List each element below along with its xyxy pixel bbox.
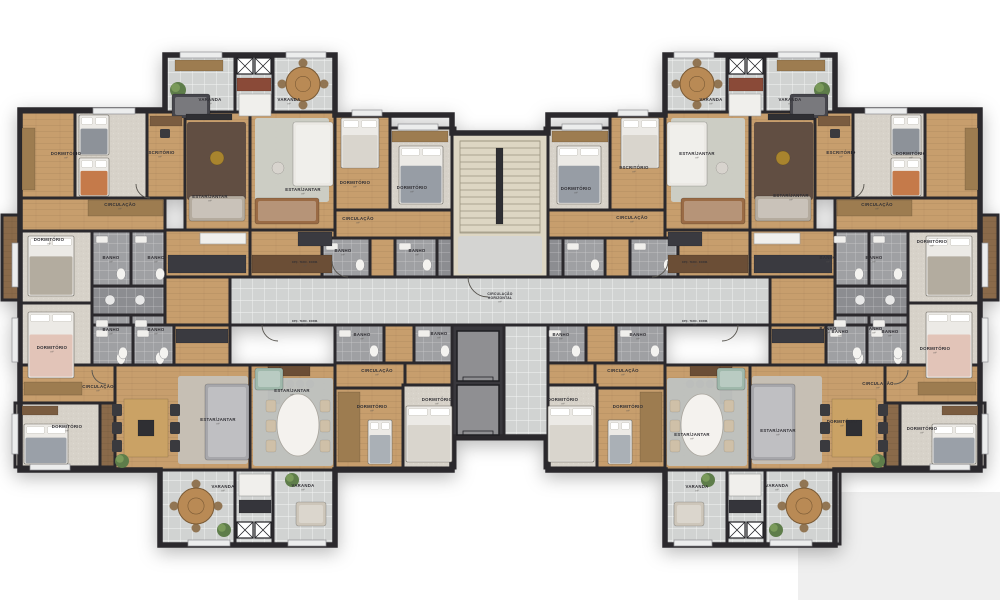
plant-leaf xyxy=(872,455,880,463)
room-overlay-circ-bm xyxy=(595,363,665,388)
round-table-chair xyxy=(299,59,308,68)
toilet-fixture xyxy=(894,347,903,359)
round-table-chair xyxy=(170,502,179,511)
room-area-label: m² xyxy=(415,253,418,256)
room-area-label: m² xyxy=(341,253,344,256)
stool xyxy=(105,295,115,305)
furniture-block xyxy=(942,406,978,415)
toilet-fixture xyxy=(855,268,864,280)
room-area-label: m² xyxy=(695,489,698,492)
elevator-cab xyxy=(457,331,499,381)
room-label: CIRCULAÇÃO xyxy=(607,368,639,373)
counter-block xyxy=(200,233,246,244)
room-label: BANHO xyxy=(147,327,164,332)
room-overlay-hall-tm xyxy=(370,238,395,277)
room-overlay-kitchen-tl2 xyxy=(165,277,230,325)
room-label: BANHO xyxy=(147,255,164,260)
bed-pillow xyxy=(362,121,377,128)
room-overlay-bath-hall xyxy=(92,286,170,315)
round-table-chair xyxy=(800,524,809,533)
sink-fixture xyxy=(339,330,351,337)
bed-blanket xyxy=(30,334,73,376)
room-area-label: m² xyxy=(875,207,878,210)
sofa-cushions xyxy=(258,371,280,387)
sofa-cushions xyxy=(258,201,316,221)
stool xyxy=(210,151,224,165)
room-area-label: m² xyxy=(109,260,112,263)
toilet-fixture xyxy=(651,345,660,357)
room-area-label: m² xyxy=(826,331,829,334)
window-mark xyxy=(982,414,988,454)
room-area-label: m² xyxy=(154,260,157,263)
door-arc xyxy=(262,325,278,341)
toilet-fixture xyxy=(160,347,169,359)
room-label: DORMITÓRIO xyxy=(37,345,68,350)
window-mark xyxy=(778,52,820,58)
round-table xyxy=(680,67,714,101)
chair xyxy=(320,440,330,452)
bed-blanket xyxy=(623,135,658,167)
sofa-cushions xyxy=(758,199,808,218)
furniture-block xyxy=(768,114,814,120)
room-label: ESTAR/JANTAR xyxy=(674,432,710,437)
furniture-block xyxy=(22,406,58,415)
window-mark xyxy=(12,318,18,362)
furniture-block xyxy=(496,148,503,224)
room-area-label: m² xyxy=(621,373,624,376)
window-mark xyxy=(12,243,18,287)
room-label: VARANDA xyxy=(700,97,723,102)
chair xyxy=(724,400,734,412)
room-label: DORMITÓRIO xyxy=(52,424,83,429)
bed-pillow xyxy=(560,149,578,156)
bed-pillow xyxy=(622,423,630,430)
sink-fixture xyxy=(634,243,646,250)
window-mark xyxy=(982,318,988,362)
room-area-label: m² xyxy=(154,332,157,335)
room-overlay-bath-hall xyxy=(830,286,908,315)
bed-blanket xyxy=(893,171,920,195)
room-label: BANHO xyxy=(552,332,569,337)
furniture-block xyxy=(818,116,850,126)
bed-pillow xyxy=(581,149,599,156)
furniture-block xyxy=(918,382,976,395)
chair xyxy=(170,422,180,434)
round-table-chair xyxy=(672,80,681,89)
room-label: CIRCULAÇÃO xyxy=(104,202,136,207)
room-label: CIRCULAÇÃO xyxy=(616,215,648,220)
bed-pillow xyxy=(894,118,905,125)
room-label: DORMITÓRIO xyxy=(613,404,644,409)
door-arc xyxy=(722,325,738,341)
window-mark xyxy=(93,108,135,114)
bed-blanket xyxy=(81,171,108,195)
window-mark xyxy=(12,414,18,454)
furniture-block xyxy=(252,255,332,273)
bed-pillow xyxy=(894,161,905,168)
room-label: BANHO xyxy=(629,332,646,337)
furniture-block xyxy=(22,128,35,190)
stool xyxy=(776,151,790,165)
room-label: ESCRITÓRIO xyxy=(619,165,649,170)
bed-pillow xyxy=(611,423,619,430)
chair xyxy=(670,420,680,432)
plant-leaf xyxy=(171,83,180,92)
room-area-label: m² xyxy=(208,102,211,105)
toilet-fixture xyxy=(370,345,379,357)
bed-pillow xyxy=(642,121,657,128)
room-label: BANHO xyxy=(865,326,882,331)
oval-table xyxy=(277,394,319,456)
room-label: CIRCULAÇÃO xyxy=(361,368,393,373)
bed-pillow xyxy=(929,315,948,322)
furniture-block xyxy=(150,116,182,126)
room-label: DORMITÓRIO xyxy=(920,346,951,351)
bed-pillow xyxy=(409,409,428,416)
round-table-chair xyxy=(320,80,329,89)
room-area-label: m² xyxy=(909,156,912,159)
room-label: CIRCULAÇÃO xyxy=(342,216,374,221)
room-area-label: m² xyxy=(158,155,161,158)
room-label: DORMITÓRIO xyxy=(548,397,579,402)
room-label: ESTAR/JANTAR xyxy=(679,151,715,156)
toilet-fixture xyxy=(591,259,600,271)
room-label: DORMITÓRIO xyxy=(397,185,428,190)
window-mark xyxy=(286,52,326,58)
furniture-block xyxy=(24,382,82,395)
round-table-chair xyxy=(278,80,287,89)
window-mark xyxy=(188,540,230,546)
room-label: DORMITÓRIO xyxy=(561,186,592,191)
rug xyxy=(458,236,542,274)
bed-blanket xyxy=(81,129,108,155)
round-table-chair xyxy=(800,480,809,489)
round-table xyxy=(178,488,214,524)
room-overlay-core-lobby xyxy=(504,325,548,439)
counter-block xyxy=(754,233,800,244)
bed-pillow xyxy=(431,409,450,416)
round-table-chair xyxy=(192,524,201,533)
room-area-label: m² xyxy=(356,221,359,224)
plant-leaf xyxy=(815,83,824,92)
room-label: BANHO xyxy=(102,255,119,260)
room-label: BANHO xyxy=(819,255,836,260)
stool xyxy=(855,295,865,305)
counter-block xyxy=(729,94,761,116)
bed-blanket xyxy=(343,135,378,167)
chair xyxy=(830,129,840,138)
room-area-label: m² xyxy=(709,102,712,105)
chair xyxy=(320,400,330,412)
sink-fixture xyxy=(834,236,846,243)
chair xyxy=(670,400,680,412)
round-table xyxy=(286,67,320,101)
chair xyxy=(670,440,680,452)
chair xyxy=(724,420,734,432)
room-label: ESCRITÓRIO xyxy=(145,150,175,155)
room-area-label: m² xyxy=(775,488,778,491)
bed-pillow xyxy=(402,149,420,156)
room-label: ESTAR/JANTAR xyxy=(285,187,321,192)
room-area-label: m² xyxy=(559,337,562,340)
room-area-label: m² xyxy=(636,337,639,340)
bed-blanket xyxy=(30,256,73,294)
furniture-block xyxy=(640,392,662,462)
sink-fixture xyxy=(96,236,108,243)
window-mark xyxy=(398,124,438,130)
room-overlay-hall-tm xyxy=(605,238,630,277)
window-mark xyxy=(930,464,970,470)
chair xyxy=(112,440,122,452)
bed-blanket xyxy=(934,438,975,464)
bed-pillow xyxy=(53,315,72,322)
bed-pillow xyxy=(27,427,45,434)
room-area-label: m² xyxy=(216,422,219,425)
window-mark xyxy=(562,124,602,130)
bed-pillow xyxy=(96,161,107,168)
counter-block xyxy=(239,474,271,496)
bed-blanket xyxy=(370,435,391,463)
round-table xyxy=(786,488,822,524)
furniture-block xyxy=(729,500,761,513)
room-area-label: m² xyxy=(64,156,67,159)
room-label: VARANDA xyxy=(292,483,315,488)
room-label: ESTAR/JANTAR xyxy=(200,417,236,422)
furniture-block xyxy=(186,114,232,120)
bed-blanket xyxy=(408,425,451,461)
bed-blanket xyxy=(26,438,67,464)
bed-pillow xyxy=(908,118,919,125)
toilet-fixture xyxy=(853,347,862,359)
room-area-label: m² xyxy=(301,488,304,491)
room-label: DORMITÓRIO xyxy=(357,404,388,409)
furniture-block xyxy=(298,232,332,246)
bed-pillow xyxy=(951,315,970,322)
furniture-block xyxy=(176,329,228,343)
room-area-label: m² xyxy=(690,437,693,440)
chair xyxy=(266,440,276,452)
room-label: VARANDA xyxy=(278,97,301,102)
bed-pillow xyxy=(551,409,570,416)
chair xyxy=(170,440,180,452)
room-area-label: m² xyxy=(840,424,843,427)
room-label: BANHO xyxy=(881,329,898,334)
room-label: DORMITÓRIO xyxy=(907,426,938,431)
room-label: DORMITÓRIO xyxy=(51,151,82,156)
plant-leaf xyxy=(286,474,294,482)
room-area-label: m² xyxy=(826,260,829,263)
window-mark xyxy=(30,464,70,470)
furniture-block xyxy=(668,232,702,246)
plant-leaf xyxy=(702,474,710,482)
room-overlay-closet-bm xyxy=(545,363,595,385)
room-label: BANHO xyxy=(102,327,119,332)
room-area-label: m² xyxy=(96,389,99,392)
round-table-chair xyxy=(822,502,831,511)
sofa-cushions xyxy=(208,387,246,457)
room-area-label: m² xyxy=(574,191,577,194)
room-label: DORMITÓRIO xyxy=(34,237,65,242)
room-area-label: m² xyxy=(630,220,633,223)
toilet-fixture xyxy=(441,345,450,357)
bed-pillow xyxy=(344,121,359,128)
chair xyxy=(820,440,830,452)
bed-pillow xyxy=(423,149,441,156)
room-area-label: m² xyxy=(410,190,413,193)
plant-leaf xyxy=(116,455,124,463)
room-area-label: m² xyxy=(695,156,698,159)
room-overlay-closet-bm xyxy=(405,363,455,385)
room-label: VARANDA xyxy=(212,484,235,489)
counter-block xyxy=(729,474,761,496)
toilet-fixture xyxy=(356,259,365,271)
room-area-label: m² xyxy=(789,198,792,201)
window-mark xyxy=(180,52,222,58)
toilet-fixture xyxy=(423,259,432,271)
room-area-label: m² xyxy=(693,323,696,326)
sofa-cushions xyxy=(192,199,242,218)
building-plan: VARANDAm²VARANDAm²DORMITÓRIOm²ESCRITÓRIO… xyxy=(2,52,998,546)
bed-pillow xyxy=(82,118,93,125)
chair xyxy=(878,440,888,452)
bed-pillow xyxy=(382,423,390,430)
furniture-block xyxy=(138,420,154,436)
room-overlay-hall-bm xyxy=(586,325,616,363)
window-mark xyxy=(770,540,812,546)
room-label: VARANDA xyxy=(766,483,789,488)
toilet-fixture xyxy=(117,268,126,280)
furniture-block xyxy=(965,128,978,190)
chair xyxy=(724,440,734,452)
furniture-block xyxy=(552,131,608,142)
bed-pillow xyxy=(624,121,639,128)
chair xyxy=(112,422,122,434)
toilet-fixture xyxy=(572,345,581,357)
room-area-label: m² xyxy=(888,334,891,337)
sofa-cushions xyxy=(296,125,330,183)
room-area-label: m² xyxy=(437,336,440,339)
oval-table xyxy=(681,394,723,456)
room-label: VARANDA xyxy=(779,97,802,102)
room-area-label: m² xyxy=(50,350,53,353)
bed-blanket xyxy=(559,166,600,203)
sofa-cushions xyxy=(684,201,742,221)
window-mark xyxy=(865,108,907,114)
room-area-label: m² xyxy=(498,300,501,303)
bed-pillow xyxy=(371,423,379,430)
room-area-label: m² xyxy=(933,351,936,354)
room-label: ESTAR/JANTAR xyxy=(760,428,796,433)
chair xyxy=(320,420,330,432)
bed-blanket xyxy=(928,256,971,294)
room-area-label: m² xyxy=(435,402,438,405)
window-mark xyxy=(352,110,382,116)
room-area-label: m² xyxy=(360,337,363,340)
sink-fixture xyxy=(418,330,430,337)
floor-plan-canvas: VARANDAm²VARANDAm²DORMITÓRIOm²ESCRITÓRIO… xyxy=(0,0,1000,600)
bed-pillow xyxy=(908,161,919,168)
window-mark xyxy=(618,110,648,116)
sink-fixture xyxy=(135,320,147,327)
stool xyxy=(135,295,145,305)
chair xyxy=(266,420,276,432)
sofa-cushions xyxy=(677,505,701,523)
room-label: BANHO xyxy=(430,331,447,336)
round-table-chair xyxy=(778,502,787,511)
furniture-block xyxy=(168,255,246,273)
room-area-label: m² xyxy=(632,170,635,173)
room-area-label: m² xyxy=(776,433,779,436)
room-label: DORMITÓRIO xyxy=(917,239,948,244)
chair xyxy=(878,404,888,416)
furniture-block xyxy=(175,60,223,71)
room-label: BANHO xyxy=(865,255,882,260)
room-label: CIRCULAÇÃO xyxy=(862,381,894,386)
room-label: ESTAR/JANTAR xyxy=(274,388,310,393)
room-area-label: m² xyxy=(876,386,879,389)
window-mark xyxy=(674,52,714,58)
floor-plan-svg: VARANDAm²VARANDAm²DORMITÓRIOm²ESCRITÓRIO… xyxy=(0,0,1000,600)
stool xyxy=(716,162,728,174)
toilet-fixture xyxy=(894,268,903,280)
bed-pillow xyxy=(31,315,50,322)
sofa-cushions xyxy=(754,387,792,457)
room-label: BANHO xyxy=(334,248,351,253)
room-area-label: m² xyxy=(930,244,933,247)
counter-block xyxy=(239,94,271,116)
furniture-block xyxy=(239,500,271,513)
round-table-chair xyxy=(714,80,723,89)
toilet-fixture xyxy=(156,268,165,280)
room-area-label: m² xyxy=(303,323,306,326)
round-table-chair xyxy=(214,502,223,511)
room-area-label: m² xyxy=(47,242,50,245)
bed-pillow xyxy=(956,427,974,434)
room-label: ESTAR/JANTAR xyxy=(773,193,809,198)
room-label: VARANDA xyxy=(686,484,709,489)
room-label: CIRCULAÇÃO xyxy=(861,202,893,207)
room-overlay-hall-bm xyxy=(384,325,414,363)
room-overlay-circ-bm xyxy=(335,363,405,388)
bed-blanket xyxy=(928,334,971,376)
room-area-label: m² xyxy=(221,489,224,492)
stool xyxy=(885,295,895,305)
round-table-chair xyxy=(192,480,201,489)
room-label-line2: HORIZONTAL xyxy=(488,296,512,300)
bed-pillow xyxy=(573,409,592,416)
chair xyxy=(170,404,180,416)
sink-fixture xyxy=(873,236,885,243)
bed-pillow xyxy=(96,118,107,125)
furniture-block xyxy=(777,60,825,71)
plant-leaf xyxy=(218,524,226,532)
furniture-block xyxy=(729,78,763,91)
chair xyxy=(878,422,888,434)
room-area-label: m² xyxy=(370,409,373,412)
room-area-label: m² xyxy=(208,199,211,202)
room-area-label: m² xyxy=(301,192,304,195)
room-label: VARANDA xyxy=(199,97,222,102)
sofa-cushions xyxy=(720,371,742,387)
elevator-cab xyxy=(457,385,499,435)
room-area-label: m² xyxy=(290,393,293,396)
room-overlay-kitchen-tl2 xyxy=(770,277,835,325)
sink-fixture xyxy=(96,320,108,327)
chair xyxy=(112,404,122,416)
room-area-label: m² xyxy=(693,264,696,267)
room-area-label: m² xyxy=(788,102,791,105)
room-label: BANHO xyxy=(408,248,425,253)
